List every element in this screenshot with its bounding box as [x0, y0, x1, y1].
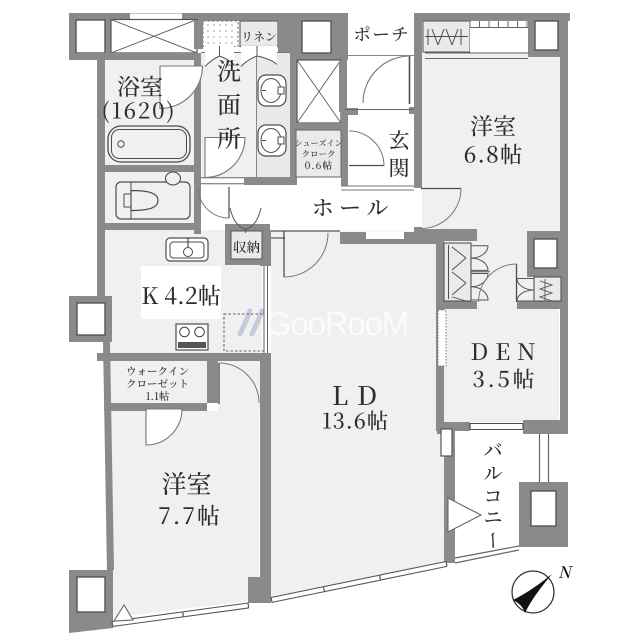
- svg-text:GooRooM: GooRooM: [266, 305, 408, 342]
